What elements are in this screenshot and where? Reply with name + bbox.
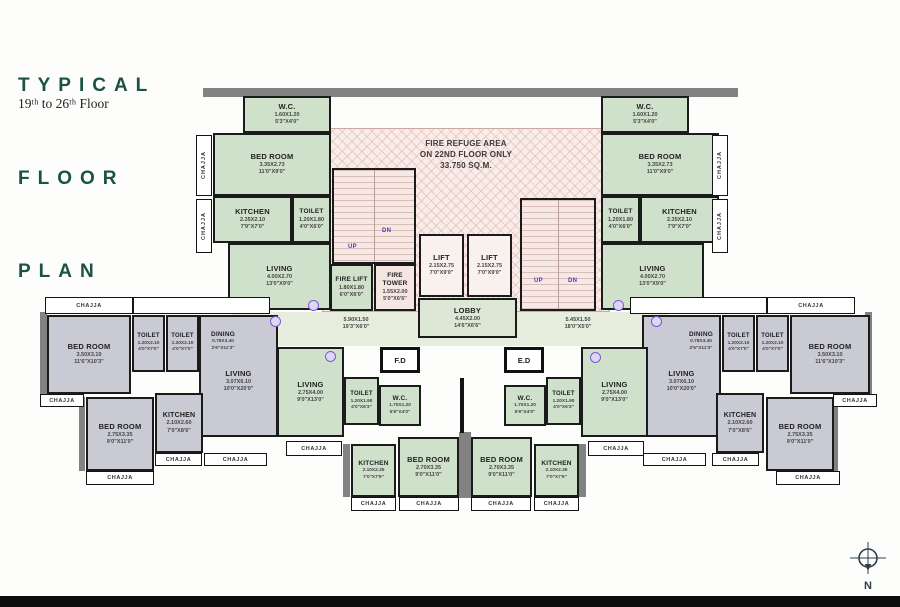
room-dim-m: 2.70X3.35 [489, 465, 514, 472]
room-dim-m: 3.35X2.73 [259, 162, 284, 169]
room-dim-ft: 4'0"X6'3" [351, 405, 372, 411]
room-name: W.C. [636, 102, 653, 112]
room-dim-ft: 11'0"X9'0" [647, 169, 674, 176]
bedroom-upper-right: BED ROOM 3.35X2.73 11'0"X9'0" [601, 133, 719, 196]
room-dim-m: 1.20X1.80 [608, 217, 633, 224]
chajja-strip: CHAJJA [45, 297, 133, 314]
floor-range-subtitle: 19ᵗʰ to 26ᵗʰ Floor [18, 96, 109, 112]
living-left-wing: LIVING 3.07X6.10 10'0"X20'0" [201, 369, 276, 393]
left-wing-exterior-wall [40, 312, 47, 394]
page-title-line3: PLAN [18, 256, 155, 287]
room-dim-ft: 9'0"X11'0" [107, 439, 134, 446]
room-dim-ft: 4'0"X7'0" [172, 347, 193, 353]
room-dim-m: 3.50X3.10 [817, 352, 842, 359]
chajja-label: CHAJJA [717, 212, 723, 240]
bedroom-center-right: BED ROOM 2.70X3.35 9'0"X11'0" [471, 437, 532, 497]
room-name: LIVING [201, 369, 276, 379]
room-name: LIVING [266, 264, 292, 274]
room-name: LIVING [639, 264, 665, 274]
room-name: TOILET [350, 391, 372, 399]
chajja-label: CHAJJA [201, 151, 207, 179]
chajja-strip [630, 297, 767, 314]
corridor-right-dimension: 5.45X1.50 18'0"X5'0" [543, 317, 613, 332]
room-name: KITCHEN [724, 411, 757, 420]
room-dim-ft: 9'0"X11'0" [488, 472, 515, 479]
room-dim-m: 4.00X2.70 [640, 274, 665, 281]
room-dim-ft: 4'0"X7'0" [762, 347, 783, 353]
room-dim-ft: 7'0"X9'0" [478, 270, 502, 277]
room-name: BED ROOM [251, 152, 294, 162]
chajja-label: CHAJJA [301, 446, 327, 452]
unit-marker-badge [590, 352, 601, 363]
room-dim-ft: 7'0"X7'9" [546, 475, 567, 481]
kitchen-center-right: KITCHEN 2.10X2.35 7'0"X7'9" [534, 444, 579, 497]
compass-icon [846, 541, 890, 579]
living-right-wing: LIVING 3.07X6.10 10'0"X20'0" [644, 369, 719, 393]
chajja-label: CHAJJA [488, 501, 514, 507]
room-name: BED ROOM [407, 455, 450, 465]
fire-refuge-line1: FIRE REFUGE AREA [366, 138, 566, 149]
chajja-strip-vertical: CHAJJA [196, 135, 212, 196]
kitchen-upper-left: KITCHEN 2.35X2.10 7'9"X7'0" [213, 196, 292, 243]
room-name: LIVING [644, 369, 719, 379]
room-name: TOILET [761, 333, 783, 341]
room-dim-ft: 7'0"X9'0" [430, 270, 454, 277]
chajja-strip: CHAJJA [534, 497, 579, 511]
stair-up-label: UP [348, 244, 357, 250]
room-dim-ft: 5'3"X4'0" [275, 119, 299, 126]
bedroom-upper-left: BED ROOM 3.35X2.73 11'0"X9'0" [213, 133, 331, 196]
fire-lift: FIRE LIFT 1.80X1.80 6'0"X6'0" [330, 264, 373, 311]
chajja-strip: CHAJJA [643, 453, 706, 466]
chajja-strip: CHAJJA [471, 497, 531, 511]
room-dim-ft: 4'0"X6'0" [300, 224, 324, 231]
chajja-label: CHAJJA [662, 457, 688, 463]
room-dim-ft: 11'6"X10'3" [815, 359, 845, 366]
wc-upper-right: W.C. 1.60X1.20 5'3"X4'0" [601, 96, 689, 133]
fire-tower: FIRE TOWER 1.55X2.00 5'0"X6'6" [374, 264, 416, 311]
staircase-right: UP DN [520, 198, 596, 311]
wall-segment [343, 444, 350, 497]
stair-up-label: UP [534, 278, 543, 284]
chajja-strip-vertical: CHAJJA [196, 199, 212, 253]
room-dim-ft: 2'6"X11'3" [679, 346, 723, 352]
chajja-strip: CHAJJA [833, 394, 877, 407]
north-label: N [846, 580, 890, 592]
wall-segment [579, 444, 586, 497]
floor-plan-canvas: TYPICAL FLOOR PLAN 19ᵗʰ to 26ᵗʰ Floor FI… [0, 0, 900, 607]
room-dim-ft: 10'0"X20'0" [201, 386, 276, 393]
room-dim-m: 4.45X2.00 [455, 316, 480, 323]
room-dim-m: 3.07X6.10 [201, 379, 276, 386]
room-name: BED ROOM [809, 342, 852, 352]
chajja-strip: CHAJJA [204, 453, 267, 466]
chajja-strip: CHAJJA [155, 453, 202, 466]
fd-box: F.D [380, 347, 420, 373]
room-dim-ft: 9'0"X13'0" [601, 397, 628, 404]
room-dim-m: 1.60X1.20 [274, 112, 299, 119]
room-name: TOILET [727, 333, 749, 341]
chajja-label: CHAJJA [361, 501, 387, 507]
chajja-label: CHAJJA [842, 398, 868, 404]
room-dim-m: 2.75X4.00 [602, 390, 627, 397]
chajja-label: CHAJJA [544, 501, 570, 507]
room-dim-m: 2.10X2.60 [727, 420, 752, 427]
kitchen-center-left: KITCHEN 2.10X2.35 7'0"X7'9" [351, 444, 396, 497]
chajja-label: CHAJJA [76, 303, 102, 309]
chajja-strip: CHAJJA [767, 297, 855, 314]
room-dim-ft: 7'0"X7'9" [363, 475, 384, 481]
room-dim-m: 2.35X2.10 [667, 217, 692, 224]
room-name: TOILET [552, 391, 574, 399]
toilet-upper-left: TOILET 1.20X1.80 4'0"X6'0" [292, 196, 331, 243]
wall-segment [79, 397, 85, 471]
room-name: LIVING [601, 380, 627, 390]
lift-1: LIFT 2.15X2.75 7'0"X9'0" [419, 234, 464, 297]
center-wall [460, 378, 464, 433]
chajja-label: CHAJJA [723, 457, 749, 463]
toilet-center-right: TOILET 1.20X1.90 4'0"X6'3" [546, 377, 581, 425]
room-name: W.C. [278, 102, 295, 112]
room-dim-ft: 13'0"X9'0" [266, 281, 293, 288]
bedroom-left-wing-lower: BED ROOM 2.75X3.35 9'0"X11'0" [86, 397, 154, 471]
toilet-right-wing-1: TOILET 1.20X2.10 4'0"X7'0" [722, 315, 755, 372]
room-dim-ft: 9'0"X13'0" [297, 397, 324, 404]
chajja-strip [133, 297, 270, 314]
room-dim-m: 3.35X2.73 [647, 162, 672, 169]
room-dim-ft: 6'0"X6'0" [340, 292, 364, 299]
room-dim-m: 4.00X2.70 [267, 274, 292, 281]
unit-marker-badge [270, 316, 281, 327]
chajja-label: CHAJJA [798, 303, 824, 309]
chajja-label: CHAJJA [603, 446, 629, 452]
corridor-right-dim-ft: 18'0"X5'0" [543, 324, 613, 331]
corridor-right-dim-m: 5.45X1.50 [543, 317, 613, 324]
room-name: LOBBY [454, 306, 481, 316]
room-name: LIFT [433, 253, 450, 263]
room-dim-ft: 4'0"X6'3" [553, 405, 574, 411]
room-dim-m: 2.75X3.35 [107, 432, 132, 439]
unit-marker-badge [651, 316, 662, 327]
chajja-label: CHAJJA [49, 398, 75, 404]
room-dim-m: 1.20X1.80 [299, 217, 324, 224]
center-divider-wall [459, 432, 471, 498]
room-dim-ft: 11'6"X10'3" [74, 359, 104, 366]
bedroom-center-left: BED ROOM 2.70X3.35 9'0"X11'0" [398, 437, 459, 497]
room-dim-m: 1.80X1.80 [339, 285, 364, 292]
room-dim-ft: 14'6"X6'6" [454, 323, 481, 330]
chajja-strip: CHAJJA [286, 441, 342, 456]
chajja-strip: CHAJJA [40, 394, 84, 407]
chajja-label: CHAJJA [223, 457, 249, 463]
toilet-upper-right: TOILET 1.20X1.80 4'0"X6'0" [601, 196, 640, 243]
room-dim-ft: 5'3"X4'0" [633, 119, 657, 126]
chajja-label: CHAJJA [166, 457, 192, 463]
room-dim-ft: 9'0"X11'0" [787, 439, 814, 446]
room-dim-ft: 4'0"X6'0" [609, 224, 633, 231]
room-dim-m: 3.50X3.10 [76, 352, 101, 359]
bedroom-right-wing-upper: BED ROOM 3.50X3.10 11'6"X10'3" [790, 315, 870, 394]
dining-right: DINING 0.78X3.40 2'6"X11'3" [679, 331, 723, 352]
room-dim-ft: 13'0"X9'0" [639, 281, 666, 288]
room-dim-ft: 4'0"X7'0" [138, 347, 159, 353]
kitchen-left-wing: KITCHEN 2.10X2.60 7'0"X8'6" [155, 393, 203, 453]
chajja-strip: CHAJJA [588, 441, 644, 456]
chajja-strip: CHAJJA [351, 497, 396, 511]
chajja-strip: CHAJJA [776, 471, 840, 485]
room-dim-m: 2.35X2.10 [240, 217, 265, 224]
room-name: LIVING [297, 380, 323, 390]
toilet-left-wing-2: TOILET 1.20X2.10 4'0"X7'0" [166, 315, 199, 372]
lobby: LOBBY 4.45X2.00 14'6"X6'6" [418, 298, 517, 338]
fire-refuge-label: FIRE REFUGE AREA ON 22ND FLOOR ONLY 33.7… [366, 138, 566, 172]
room-dim-ft: 5'0"X6'6" [383, 296, 407, 303]
bedroom-right-wing-lower: BED ROOM 2.75X3.35 9'0"X11'0" [766, 397, 834, 471]
room-name: BED ROOM [68, 342, 111, 352]
room-dim-ft: 9'0"X11'0" [415, 472, 442, 479]
chajja-label: CHAJJA [107, 475, 133, 481]
room-dim-m: 2.75X3.35 [787, 432, 812, 439]
chajja-label: CHAJJA [416, 501, 442, 507]
lift-2: LIFT 2.15X2.75 7'0"X9'0" [467, 234, 512, 297]
wc-center-right: W.C. 1.70X1.20 5'6"X4'0" [504, 385, 546, 426]
kitchen-right-wing: KITCHEN 2.10X2.60 7'0"X8'6" [716, 393, 764, 453]
room-name: KITCHEN [662, 207, 697, 217]
chajja-strip-vertical: CHAJJA [712, 199, 728, 253]
room-dim-ft: 10'0"X20'0" [644, 386, 719, 393]
room-dim-ft: 7'9"X7'0" [241, 224, 265, 231]
room-dim-ft: 5'6"X4'0" [390, 410, 411, 416]
corridor-left-dim-ft: 19'3"X6'0" [321, 324, 391, 331]
toilet-center-left: TOILET 1.20X1.90 4'0"X6'3" [344, 377, 379, 425]
stair-dn-label: DN [568, 278, 577, 284]
room-dim-ft: 2'6"X11'3" [201, 346, 245, 352]
room-name: BED ROOM [480, 455, 523, 465]
north-compass: N [846, 541, 890, 595]
corridor-left-dim-m: 5.90X1.50 [321, 317, 391, 324]
room-dim-m: 2.70X3.35 [416, 465, 441, 472]
room-name: FIRE TOWER [376, 272, 414, 289]
bottom-black-bar [0, 596, 900, 607]
bedroom-left-wing-upper: BED ROOM 3.50X3.10 11'6"X10'3" [47, 315, 131, 394]
chajja-label: CHAJJA [795, 475, 821, 481]
room-dim-m: 2.15X2.75 [477, 263, 502, 270]
toilet-right-wing-2: TOILET 1.20X2.10 4'0"X7'0" [756, 315, 789, 372]
dining-living-right-block: DINING 0.78X3.40 2'6"X11'3" LIVING 3.07X… [642, 315, 721, 437]
room-name: BED ROOM [99, 422, 142, 432]
room-dim-m: 2.10X2.60 [166, 420, 191, 427]
room-name: LIFT [481, 253, 498, 263]
room-dim-ft: 7'9"X7'0" [668, 224, 692, 231]
room-name: TOILET [299, 208, 323, 216]
chajja-strip: CHAJJA [712, 453, 759, 466]
page-title-line2: FLOOR [18, 163, 155, 194]
room-dim-ft: 5'6"X4'0" [515, 410, 536, 416]
room-dim-m: 2.75X4.00 [298, 390, 323, 397]
room-dim-ft: 7'0"X8'6" [728, 428, 752, 435]
room-name: KITCHEN [163, 411, 196, 420]
room-name: TOILET [137, 333, 159, 341]
stair-dn-label: DN [382, 228, 391, 234]
unit-marker-badge [325, 351, 336, 362]
dining-left: DINING 0.78X3.40 2'6"X11'3" [201, 331, 245, 352]
room-dim-m: 2.15X2.75 [429, 263, 454, 270]
ed-box: E.D [504, 347, 544, 373]
room-dim-ft: 11'0"X9'0" [259, 169, 286, 176]
room-dim-m: 3.07X6.10 [644, 379, 719, 386]
room-dim-m: 1.60X1.20 [632, 112, 657, 119]
room-name: FIRE LIFT [335, 276, 367, 284]
fire-refuge-line2: ON 22ND FLOOR ONLY [366, 149, 566, 160]
room-name: BED ROOM [639, 152, 682, 162]
wc-center-left: W.C. 1.70X1.20 5'6"X4'0" [379, 385, 421, 426]
corridor-left-dimension: 5.90X1.50 19'3"X6'0" [321, 317, 391, 332]
chajja-label: CHAJJA [717, 151, 723, 179]
room-dim-ft: 4'0"X7'0" [728, 347, 749, 353]
room-dim-m: 1.55X2.00 [382, 289, 407, 296]
room-name: TOILET [171, 333, 193, 341]
chajja-strip: CHAJJA [86, 471, 154, 485]
unit-marker-badge [308, 300, 319, 311]
kitchen-upper-right: KITCHEN 2.35X2.10 7'9"X7'0" [640, 196, 719, 243]
staircase-left: DN UP [332, 168, 416, 264]
unit-marker-badge [613, 300, 624, 311]
room-name: BED ROOM [779, 422, 822, 432]
room-name: KITCHEN [235, 207, 270, 217]
toilet-left-wing-1: TOILET 1.20X2.10 4'0"X7'0" [132, 315, 165, 372]
chajja-strip: CHAJJA [399, 497, 459, 511]
room-name: TOILET [608, 208, 632, 216]
room-dim-ft: 7'0"X8'6" [167, 428, 191, 435]
chajja-strip-vertical: CHAJJA [712, 135, 728, 196]
wc-upper-left: W.C. 1.60X1.20 5'3"X4'0" [243, 96, 331, 133]
chajja-label: CHAJJA [201, 212, 207, 240]
dining-living-left-block: DINING 0.78X3.40 2'6"X11'3" LIVING 3.07X… [199, 315, 278, 437]
